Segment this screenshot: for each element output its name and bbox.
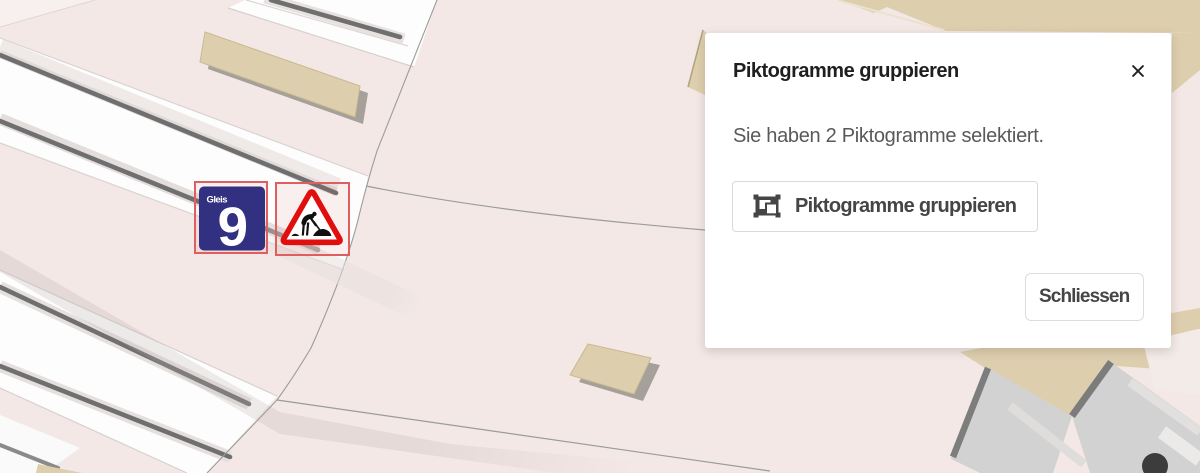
svg-text:9: 9 <box>218 196 249 258</box>
